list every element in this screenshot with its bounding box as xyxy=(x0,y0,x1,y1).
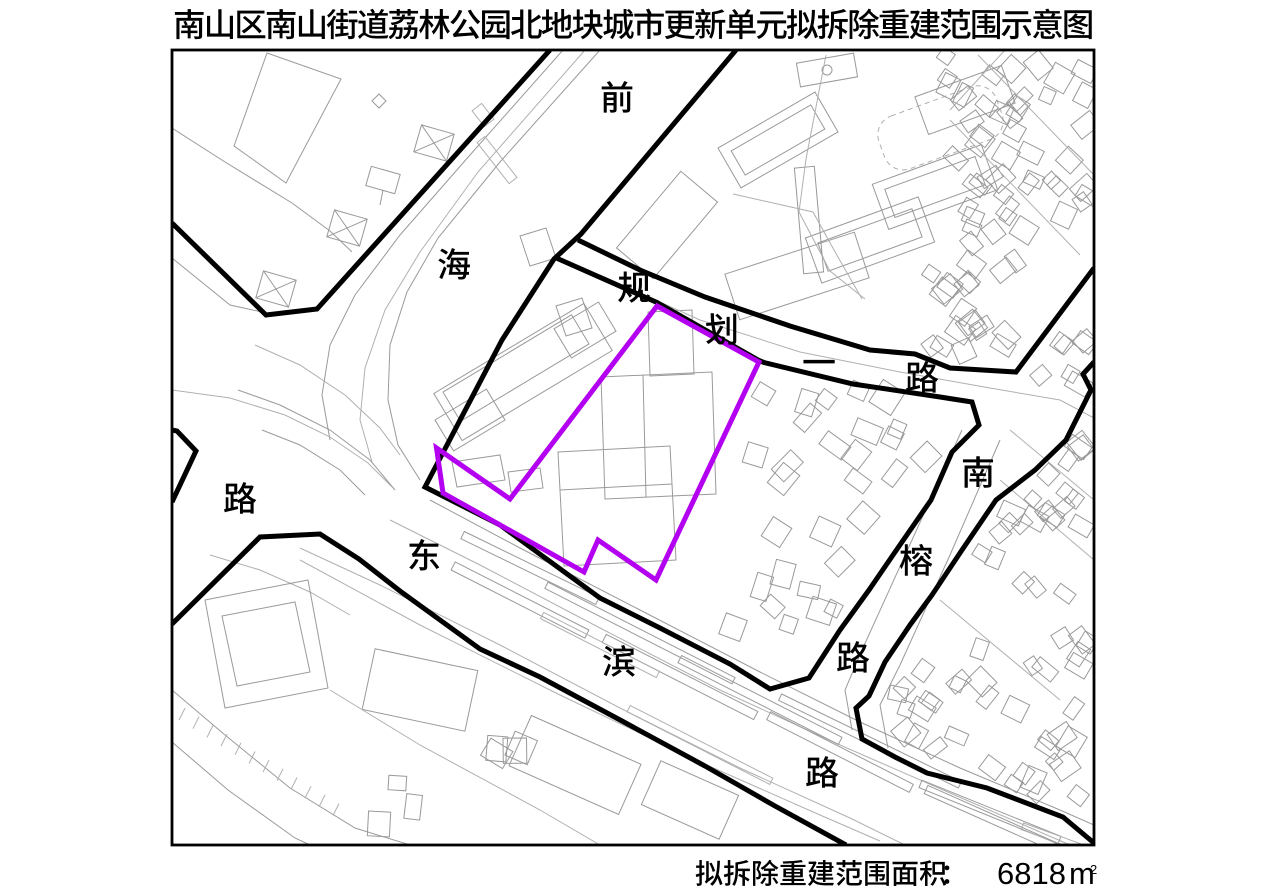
svg-text:2: 2 xyxy=(1090,862,1097,877)
svg-text:6818: 6818 xyxy=(997,856,1066,891)
